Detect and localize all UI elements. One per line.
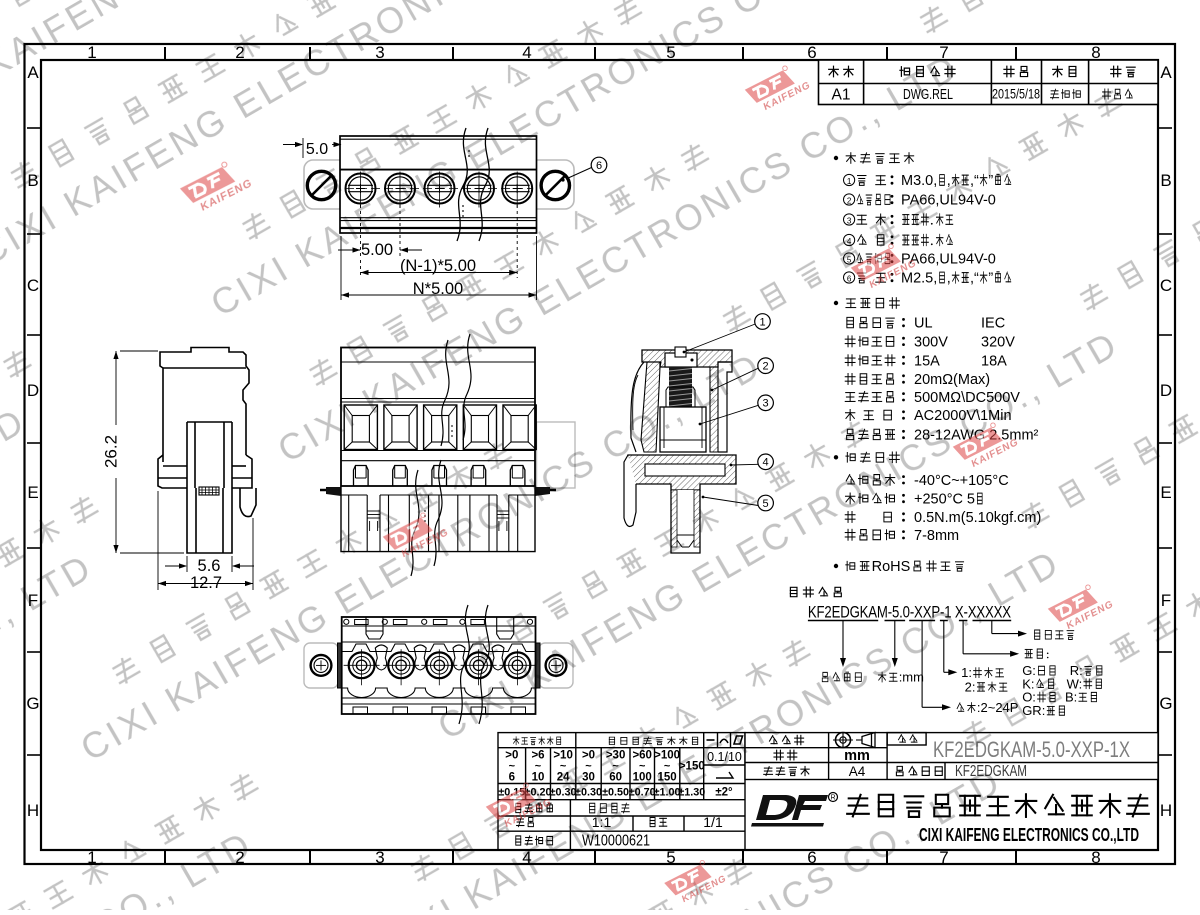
svg-text:RoHS: RoHS <box>872 559 911 575</box>
svg-text:”: ” <box>988 271 993 287</box>
svg-text:D: D <box>1160 381 1172 400</box>
svg-text:5.0: 5.0 <box>306 141 328 158</box>
svg-text:6: 6 <box>847 275 852 284</box>
svg-text:5.6: 5.6 <box>198 557 221 575</box>
svg-text:±2°: ±2° <box>715 787 733 799</box>
svg-text:mm: mm <box>844 748 870 764</box>
svg-text:N*5.00: N*5.00 <box>413 280 463 298</box>
svg-text:1:: 1: <box>961 665 972 680</box>
svg-text:A4: A4 <box>849 764 866 779</box>
svg-text:,“: ,“ <box>970 173 979 189</box>
svg-text:5: 5 <box>666 848 675 867</box>
svg-text:1: 1 <box>759 316 765 328</box>
svg-text:12.7: 12.7 <box>190 574 222 592</box>
svg-text:60: 60 <box>609 772 622 784</box>
svg-text:300V: 300V <box>914 335 948 351</box>
svg-text:C: C <box>1160 276 1172 295</box>
svg-text:B:: B: <box>1065 690 1077 705</box>
svg-text:+250: +250 <box>914 492 947 508</box>
svg-text:D: D <box>27 381 39 400</box>
svg-text:18A: 18A <box>981 353 1007 369</box>
svg-text:(N-1)*5.00: (N-1)*5.00 <box>400 257 476 275</box>
svg-text:7-8mm: 7-8mm <box>914 528 959 544</box>
svg-text:H: H <box>27 801 39 820</box>
svg-text:6: 6 <box>596 160 602 172</box>
svg-text:IEC: IEC <box>981 316 1005 332</box>
svg-text:4: 4 <box>763 457 769 469</box>
svg-text:GR:: GR: <box>1022 703 1045 718</box>
svg-text:A: A <box>1160 63 1172 82</box>
svg-text:6: 6 <box>807 43 816 62</box>
svg-text:G: G <box>26 694 39 713</box>
svg-text:C: C <box>27 276 39 295</box>
svg-text:2015/5/18: 2015/5/18 <box>992 87 1040 102</box>
svg-text:320V: 320V <box>981 335 1015 351</box>
svg-text:26.2: 26.2 <box>102 435 121 468</box>
svg-text:”: ” <box>988 173 993 189</box>
svg-text:3: 3 <box>375 848 384 867</box>
svg-text:8: 8 <box>1091 43 1100 62</box>
svg-text:KF2EDGKAM-5.0-XXP-1X: KF2EDGKAM-5.0-XXP-1X <box>933 737 1130 762</box>
svg-text:20mΩ(Max): 20mΩ(Max) <box>914 372 990 388</box>
svg-text:°C: °C <box>947 492 963 508</box>
svg-text:15A: 15A <box>914 353 940 369</box>
svg-text:E: E <box>27 483 38 502</box>
svg-text:1: 1 <box>87 848 96 867</box>
svg-text:4: 4 <box>522 43 531 62</box>
svg-text:°C: °C <box>992 473 1008 489</box>
svg-text:R: R <box>830 795 835 802</box>
svg-text:°C: °C <box>935 473 951 489</box>
svg-text:~+105: ~+105 <box>951 473 992 489</box>
svg-text:M3.0,: M3.0, <box>901 173 937 189</box>
svg-text:CIXI KAIFENG ELECTRONICS CO.,L: CIXI KAIFENG ELECTRONICS CO.,LTD <box>919 825 1139 845</box>
svg-text::mm: :mm <box>899 670 924 685</box>
svg-text:H: H <box>1160 801 1172 820</box>
svg-text:UL: UL <box>914 316 933 332</box>
svg-text:5.00: 5.00 <box>361 241 393 259</box>
svg-text:G: G <box>1159 694 1172 713</box>
svg-text:B: B <box>1160 171 1171 190</box>
svg-text:,: , <box>947 173 951 189</box>
svg-text:7: 7 <box>939 848 948 867</box>
svg-text:,“: ,“ <box>970 271 979 287</box>
svg-text:2: 2 <box>847 197 852 206</box>
svg-text:30: 30 <box>582 772 595 784</box>
svg-text:2:: 2: <box>965 680 976 695</box>
svg-text:8: 8 <box>1091 848 1100 867</box>
svg-text:E: E <box>1160 483 1171 502</box>
svg-text:3: 3 <box>763 398 769 410</box>
svg-text:3: 3 <box>847 217 852 226</box>
svg-text:5: 5 <box>963 492 975 508</box>
svg-text:PA66,UL94V-0: PA66,UL94V-0 <box>901 193 996 209</box>
svg-text:1: 1 <box>847 177 852 186</box>
svg-text:1: 1 <box>87 43 96 62</box>
svg-text:10: 10 <box>532 772 545 784</box>
svg-text:5: 5 <box>763 498 769 510</box>
svg-text:F: F <box>1161 591 1171 610</box>
svg-text:1/1: 1/1 <box>703 814 723 830</box>
svg-text:6: 6 <box>509 772 515 784</box>
svg-text:,: , <box>947 271 951 287</box>
